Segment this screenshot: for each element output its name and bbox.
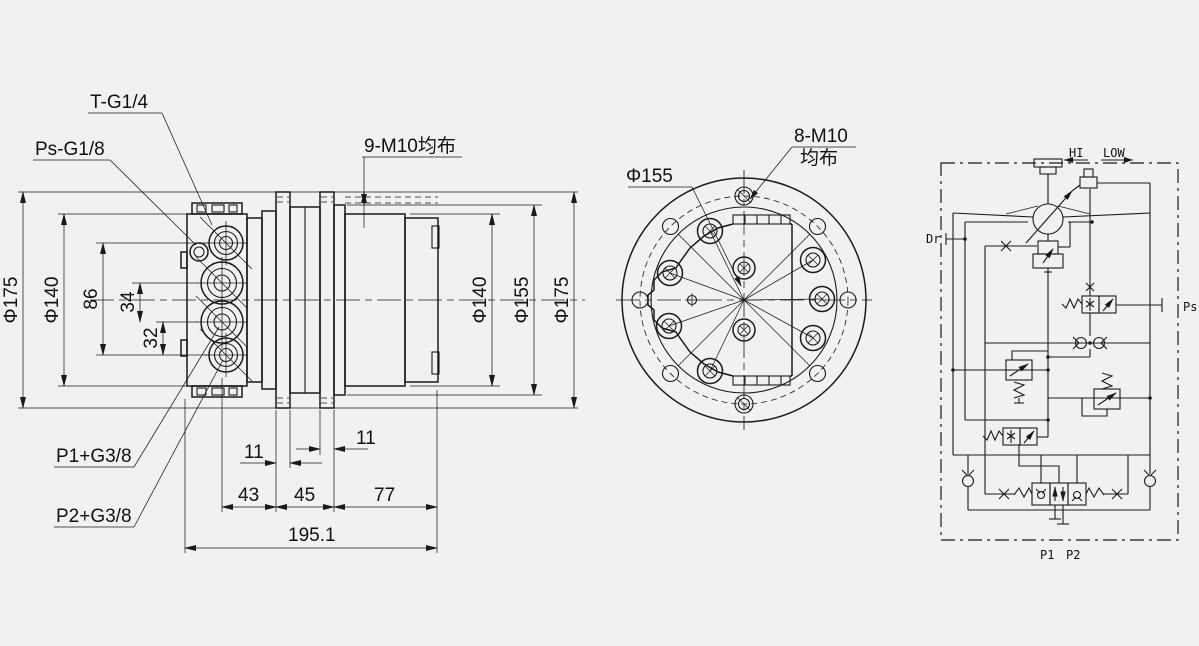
spring-icon (1014, 382, 1024, 398)
label-p1: P1 (1040, 548, 1054, 562)
label-p2: P2 (1066, 548, 1080, 562)
small-pin-hole (685, 293, 699, 307)
check-valve-right (1144, 455, 1156, 510)
dim-phi155-right: Φ155 (512, 277, 533, 324)
check-valve-left (962, 455, 974, 510)
dim-86: 86 (81, 288, 102, 309)
hydraulic-schematic: HI LOW Dr Ps P1 P2 (926, 146, 1197, 562)
schematic-lines (951, 183, 1152, 510)
dim-11-right: 11 (356, 428, 376, 449)
drawing-canvas: T-G1/4 Ps-G1/8 P1+G3/8 P2+G3/8 9-M10均布 Φ… (0, 0, 1199, 646)
dim-43: 43 (238, 485, 259, 506)
side-view-dimensions-bottom: 11 11 43 45 77 195.1 (185, 378, 437, 553)
dim-195-1: 195.1 (288, 525, 336, 546)
dim-77: 77 (374, 485, 395, 506)
speed-select-valve (1062, 283, 1116, 336)
front-view: Φ155 8-M10 均布 (616, 126, 872, 430)
label-p1-port: P1+G3/8 (56, 446, 132, 467)
technical-drawing: T-G1/4 Ps-G1/8 P1+G3/8 P2+G3/8 9-M10均布 Φ… (0, 0, 1199, 646)
spring-icon (1102, 373, 1112, 389)
dim-phi140-right: Φ140 (470, 277, 491, 324)
label-ps-port: Ps-G1/8 (35, 139, 105, 160)
variable-motor-symbol (953, 159, 1150, 243)
label-low: LOW (1103, 146, 1125, 160)
spring-icon (983, 431, 1003, 440)
label-8-m10-line1: 8-M10 (794, 126, 848, 147)
label-t-port: T-G1/4 (90, 92, 149, 113)
label-dr-port: Dr (926, 232, 940, 246)
dim-phi175-right: Φ175 (552, 277, 573, 324)
side-view: T-G1/4 Ps-G1/8 P1+G3/8 P2+G3/8 9-M10均布 Φ… (1, 92, 585, 553)
spring-icon (1062, 299, 1082, 308)
counterbalance-valve (985, 455, 1128, 524)
label-8-m10-line2: 均布 (800, 147, 838, 169)
dim-32: 32 (141, 327, 162, 348)
dim-34: 34 (118, 291, 139, 313)
spring-icon (1014, 488, 1032, 497)
label-9-m10: 9-M10均布 (364, 135, 456, 157)
dim-45: 45 (294, 485, 315, 506)
relief-valve-left (1006, 351, 1048, 403)
dim-phi175-left: Φ175 (1, 277, 22, 324)
label-p2-port: P2+G3/8 (56, 506, 132, 527)
shuttle-check-valves (1048, 337, 1107, 357)
label-ps-pilot-port: Ps (1183, 300, 1197, 314)
spring-icon (1086, 488, 1104, 497)
port-circles (190, 217, 252, 381)
side-view-dimensions-right: Φ140 Φ155 Φ175 (470, 192, 574, 408)
dim-phi155-front: Φ155 (626, 166, 673, 187)
dim-11-left: 11 (244, 442, 264, 463)
relief-valve-right (1082, 373, 1120, 416)
port-ps (190, 243, 208, 261)
dim-phi140-left: Φ140 (42, 277, 63, 324)
